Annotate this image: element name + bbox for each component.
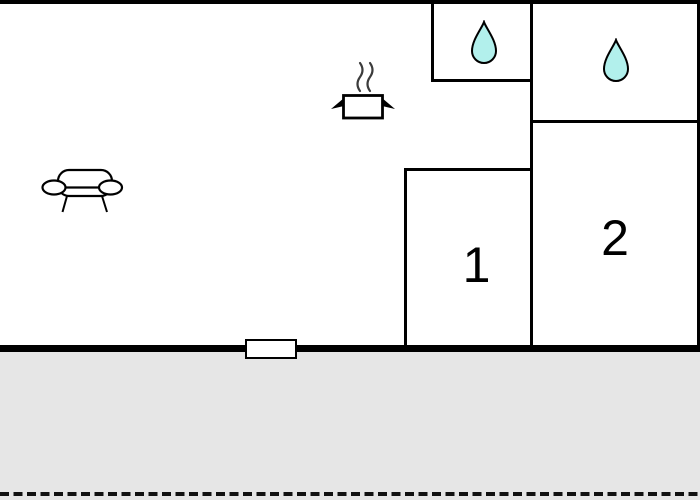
wall-top-bathroom-bottom — [431, 79, 533, 82]
room-2: 2 — [533, 123, 697, 345]
floor-plan: 1 2 — [0, 0, 700, 500]
water-drop-shape — [472, 22, 496, 63]
sofa-leg-right — [102, 196, 107, 212]
room-1: 1 — [407, 172, 530, 345]
sofa-icon — [40, 166, 124, 214]
steam-line — [368, 63, 373, 91]
wall-north — [0, 0, 700, 4]
room-1-label: 1 — [463, 240, 491, 290]
room-2-label: 2 — [601, 213, 629, 263]
pot-handle-left — [331, 98, 344, 109]
sofa-armrest-right — [99, 181, 122, 195]
window-marker — [245, 339, 297, 359]
sofa-armrest-left — [43, 181, 66, 195]
wall-room-1-top — [404, 168, 533, 171]
water-drop-shape — [604, 40, 628, 81]
pot-handle-right — [382, 98, 395, 109]
terrace-area — [0, 352, 700, 500]
water-drop-icon — [469, 20, 499, 66]
sofa-leg-left — [63, 196, 68, 212]
steam-line — [358, 63, 363, 91]
water-drop-icon — [601, 38, 631, 84]
wall-top-bathroom-left — [431, 4, 434, 80]
wall-south — [0, 345, 700, 352]
plot-boundary-dashed-line — [0, 492, 700, 496]
pot-body — [344, 96, 383, 119]
cooking-pot-icon — [328, 58, 400, 122]
